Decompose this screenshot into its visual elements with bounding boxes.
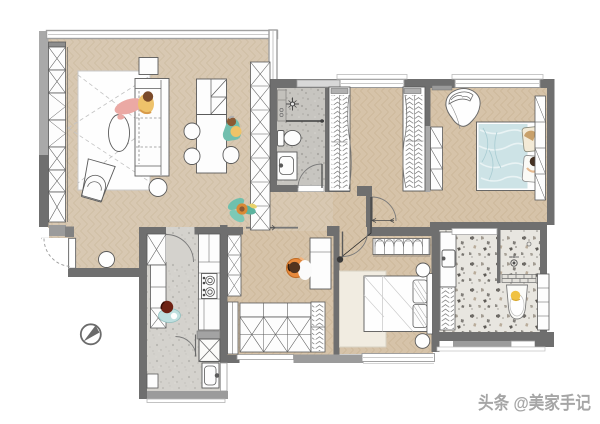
svg-text:头条 @美家手记: 头条 @美家手记 [478, 393, 591, 413]
